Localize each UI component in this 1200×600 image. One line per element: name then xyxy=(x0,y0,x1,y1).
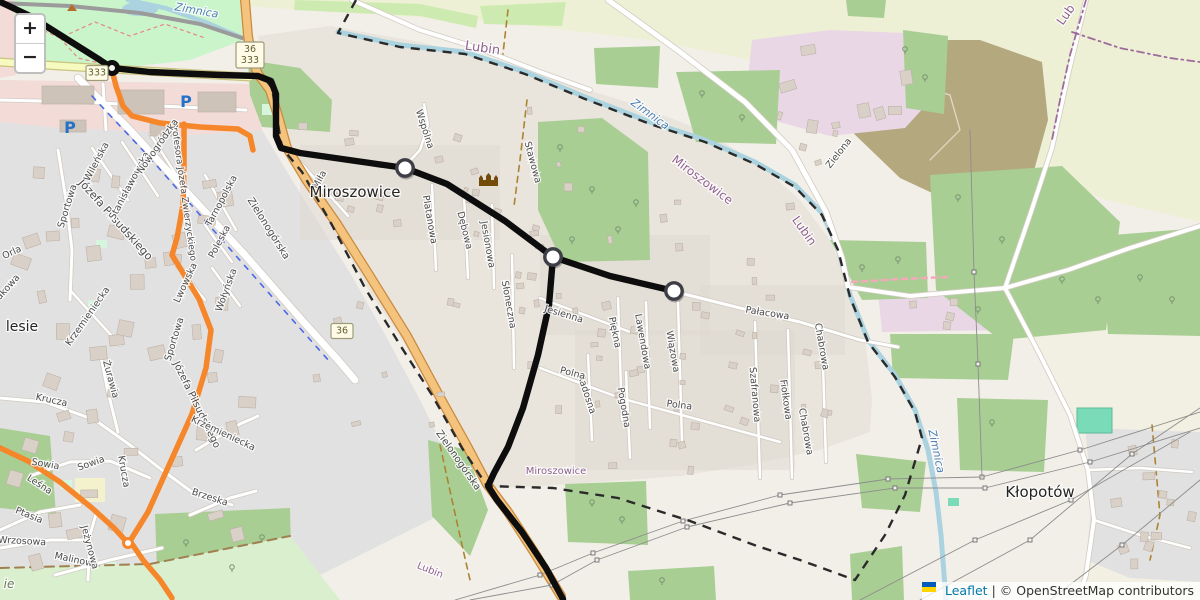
place-label: Miroszowice xyxy=(310,183,401,201)
road-shield-text: 333 xyxy=(241,55,259,66)
road-shield-text: 333 xyxy=(88,68,106,79)
route-marker[interactable] xyxy=(545,249,561,265)
road-shield-text: 36 xyxy=(336,326,348,337)
route-marker[interactable] xyxy=(666,283,682,299)
road-shield-text: 36 xyxy=(244,44,256,55)
zoom-in-button[interactable]: + xyxy=(16,15,44,43)
attribution-bar: Leaflet | © OpenStreetMap contributors xyxy=(922,582,1200,600)
boundary-label: Miroszowice xyxy=(526,466,587,477)
leaflet-link[interactable]: Leaflet xyxy=(945,583,988,598)
ukraine-flag-icon xyxy=(927,586,941,596)
parking-icon: P xyxy=(64,118,76,137)
attribution-separator: | xyxy=(992,583,996,598)
place-label: Kłopotów xyxy=(1005,483,1074,501)
place-label: lesie xyxy=(6,319,38,335)
zoom-out-button[interactable]: − xyxy=(16,43,44,72)
map-canvas[interactable]: PP3633333336Józefa PiłsudskiegoJózefa Pi… xyxy=(0,0,1200,600)
place-label: ie xyxy=(4,577,15,591)
mini-roundabout xyxy=(124,539,133,548)
map-svg: PP3633333336Józefa PiłsudskiegoJózefa Pi… xyxy=(0,0,1200,600)
osm-contributors-link[interactable]: © OpenStreetMap contributors xyxy=(1000,583,1194,598)
zoom-control: + − xyxy=(14,13,46,74)
parking-icon: P xyxy=(180,92,192,111)
route-marker[interactable] xyxy=(397,160,413,176)
